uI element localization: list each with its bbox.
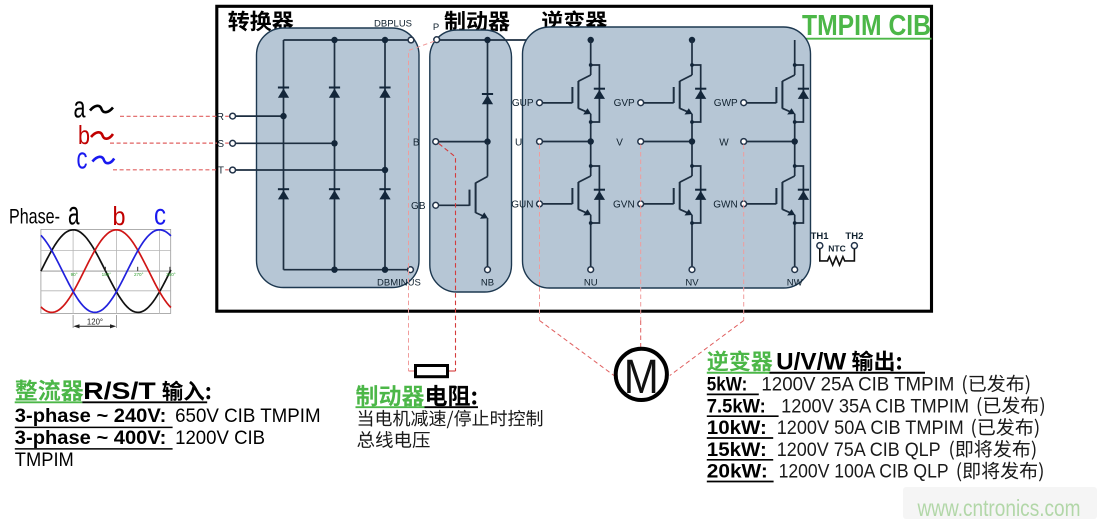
svg-text:1200V 35A CIB TMPIM: 1200V 35A CIB TMPIM — [781, 396, 969, 417]
svg-text:U/V/W: U/V/W — [776, 348, 846, 375]
svg-text:U: U — [515, 138, 522, 149]
svg-text:B: B — [413, 137, 420, 148]
svg-text:NB: NB — [481, 278, 494, 289]
svg-text:1200V 100A CIB QLP: 1200V 100A CIB QLP — [779, 462, 949, 483]
svg-text:TMPIM CIB: TMPIM CIB — [802, 10, 931, 42]
svg-text:S: S — [217, 139, 224, 150]
svg-text:a: a — [68, 195, 80, 232]
svg-text:GWN: GWN — [713, 200, 737, 211]
svg-text:P: P — [433, 22, 439, 33]
svg-text:270°: 270° — [134, 272, 144, 277]
svg-text:TH2: TH2 — [845, 231, 863, 242]
svg-text:W: W — [719, 138, 729, 149]
svg-text:T: T — [218, 166, 224, 177]
svg-text:R/S/T: R/S/T — [83, 378, 156, 405]
svg-text:1200V 50A CIB TMPIM: 1200V 50A CIB TMPIM — [777, 418, 964, 439]
svg-text:b: b — [113, 201, 126, 231]
svg-text:R: R — [217, 112, 224, 123]
svg-text:15kW:: 15kW: — [707, 440, 767, 461]
svg-text:3-phase ~ 240V:: 3-phase ~ 240V: — [15, 406, 167, 427]
svg-text:GWP: GWP — [714, 98, 738, 109]
svg-text:V: V — [616, 138, 623, 149]
svg-text:180°: 180° — [102, 272, 112, 277]
svg-text:3-phase ~ 400V:: 3-phase ~ 400V: — [15, 428, 167, 449]
svg-text:www.cntronics.com: www.cntronics.com — [917, 495, 1081, 520]
svg-text:650V CIB TMPIM: 650V CIB TMPIM — [175, 406, 321, 427]
svg-text:7.5kW:: 7.5kW: — [707, 396, 766, 417]
svg-text:NU: NU — [584, 278, 598, 289]
svg-text:TMPIM: TMPIM — [15, 450, 74, 471]
svg-text:M: M — [624, 351, 659, 404]
svg-text:20kW:: 20kW: — [707, 462, 768, 483]
svg-text:GVP: GVP — [614, 98, 635, 109]
svg-text:NW: NW — [787, 278, 803, 289]
svg-text:1200V 75A CIB QLP: 1200V 75A CIB QLP — [777, 440, 941, 461]
svg-text:10kW:: 10kW: — [707, 418, 767, 439]
svg-text:DBMINUS: DBMINUS — [377, 278, 421, 289]
svg-text:GUP: GUP — [512, 98, 534, 109]
svg-text:DBPLUS: DBPLUS — [374, 19, 412, 30]
svg-text:1200V 25A CIB TMPIM: 1200V 25A CIB TMPIM — [761, 375, 954, 396]
svg-text:5kW:: 5kW: — [707, 375, 748, 396]
svg-text:360°: 360° — [166, 272, 176, 277]
svg-text:NV: NV — [685, 278, 699, 289]
svg-text:1200V CIB: 1200V CIB — [175, 428, 265, 449]
svg-text:GVN: GVN — [613, 200, 635, 211]
svg-text:c: c — [154, 199, 166, 232]
svg-text:Phase-: Phase- — [9, 206, 60, 229]
svg-text:GB: GB — [411, 201, 426, 212]
svg-text:GUN: GUN — [511, 200, 533, 211]
svg-text:TH1: TH1 — [811, 231, 830, 242]
svg-text:c: c — [77, 141, 88, 176]
svg-text:120°: 120° — [87, 317, 103, 326]
svg-text:NTC: NTC — [828, 244, 845, 254]
svg-text:90°: 90° — [71, 272, 78, 277]
